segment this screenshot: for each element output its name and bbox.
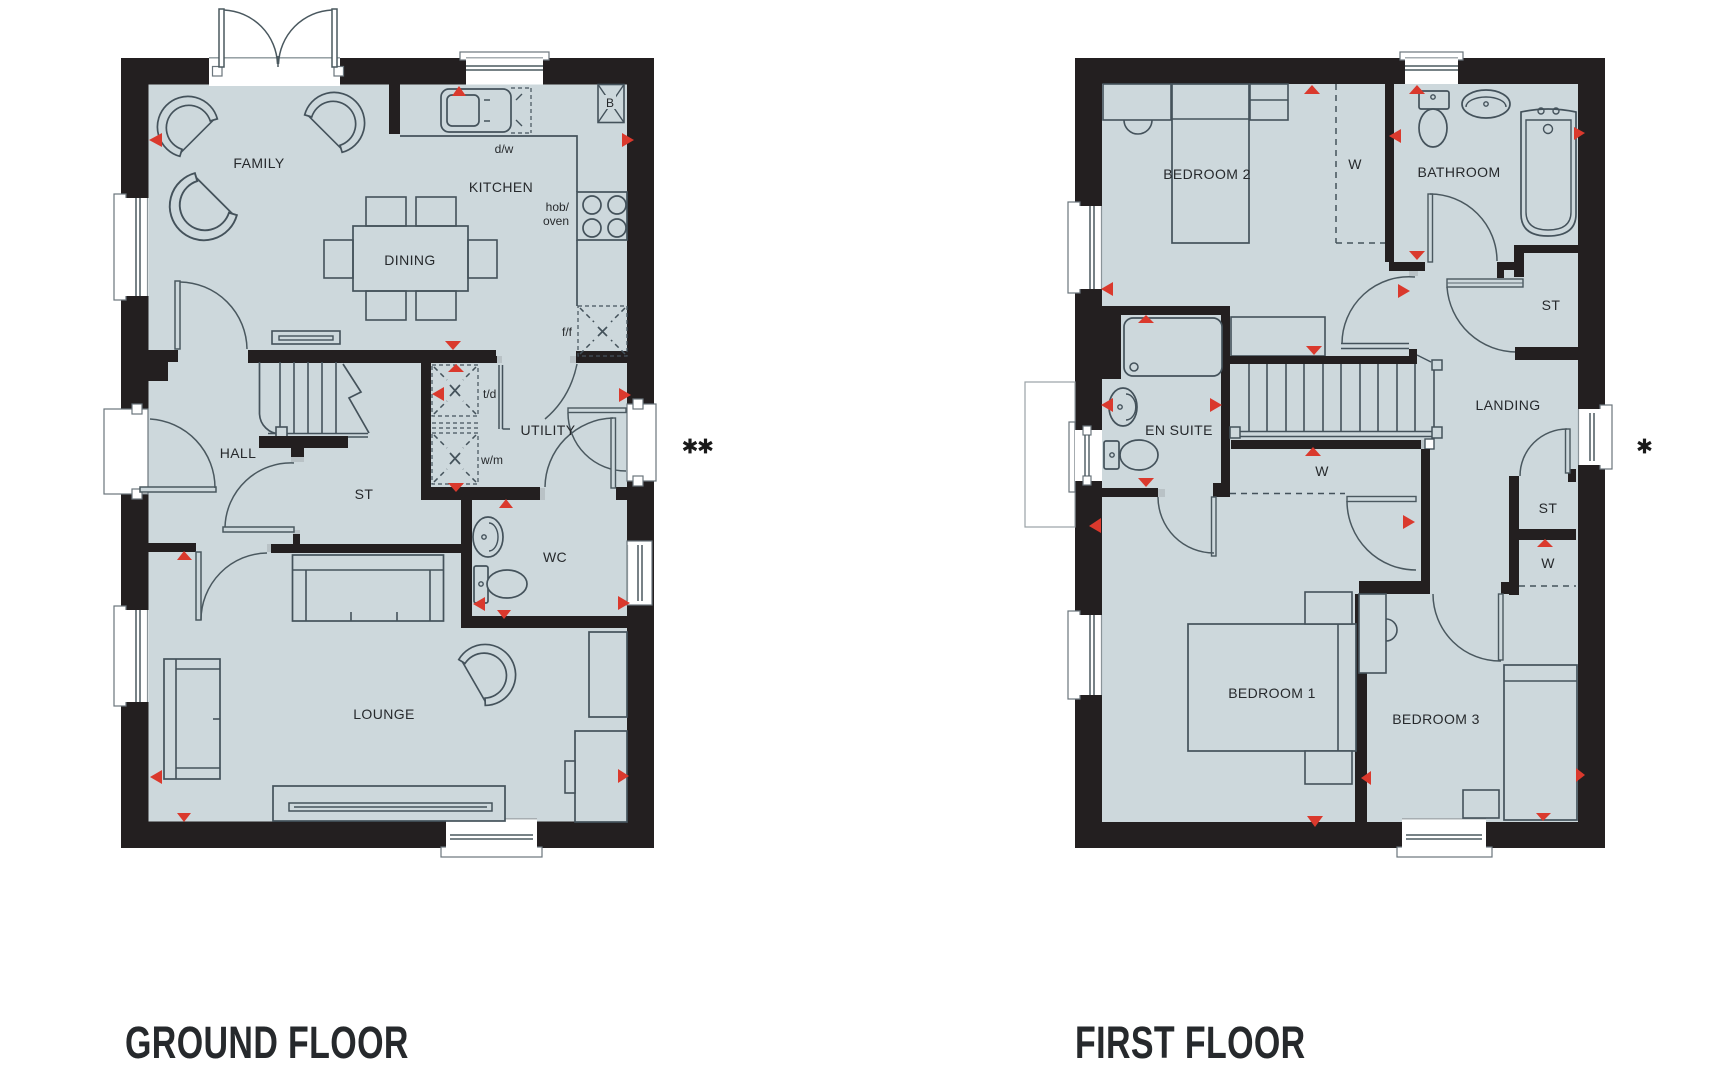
svg-text:BATHROOM: BATHROOM — [1417, 164, 1500, 180]
svg-text:f/f: f/f — [562, 325, 573, 339]
svg-text:EN SUITE: EN SUITE — [1145, 422, 1213, 438]
svg-text:t/d: t/d — [483, 387, 496, 401]
svg-text:UTILITY: UTILITY — [521, 422, 576, 438]
svg-text:d/w: d/w — [495, 142, 514, 156]
svg-text:FAMILY: FAMILY — [233, 155, 284, 171]
svg-text:hob/: hob/ — [546, 200, 570, 214]
svg-text:WC: WC — [543, 549, 567, 565]
svg-text:LOUNGE: LOUNGE — [353, 706, 415, 722]
svg-text:LANDING: LANDING — [1475, 397, 1540, 413]
svg-text:W: W — [1541, 555, 1555, 571]
svg-text:ST: ST — [355, 486, 374, 502]
svg-text:B: B — [606, 96, 614, 110]
svg-text:GROUND FLOOR: GROUND FLOOR — [125, 1018, 409, 1068]
svg-text:oven: oven — [543, 214, 569, 228]
svg-text:BEDROOM 2: BEDROOM 2 — [1163, 166, 1251, 182]
svg-text:ST: ST — [1542, 297, 1561, 313]
svg-text:KITCHEN: KITCHEN — [469, 179, 533, 195]
svg-text:HALL: HALL — [220, 445, 257, 461]
svg-text:DINING: DINING — [384, 252, 435, 268]
svg-text:BEDROOM 3: BEDROOM 3 — [1392, 711, 1480, 727]
svg-text:BEDROOM 1: BEDROOM 1 — [1228, 685, 1316, 701]
svg-text:W: W — [1348, 156, 1362, 172]
svg-text:W: W — [1315, 463, 1329, 479]
svg-text:w/m: w/m — [480, 453, 503, 467]
svg-text:ST: ST — [1539, 500, 1558, 516]
svg-text:FIRST FLOOR: FIRST FLOOR — [1075, 1018, 1306, 1068]
